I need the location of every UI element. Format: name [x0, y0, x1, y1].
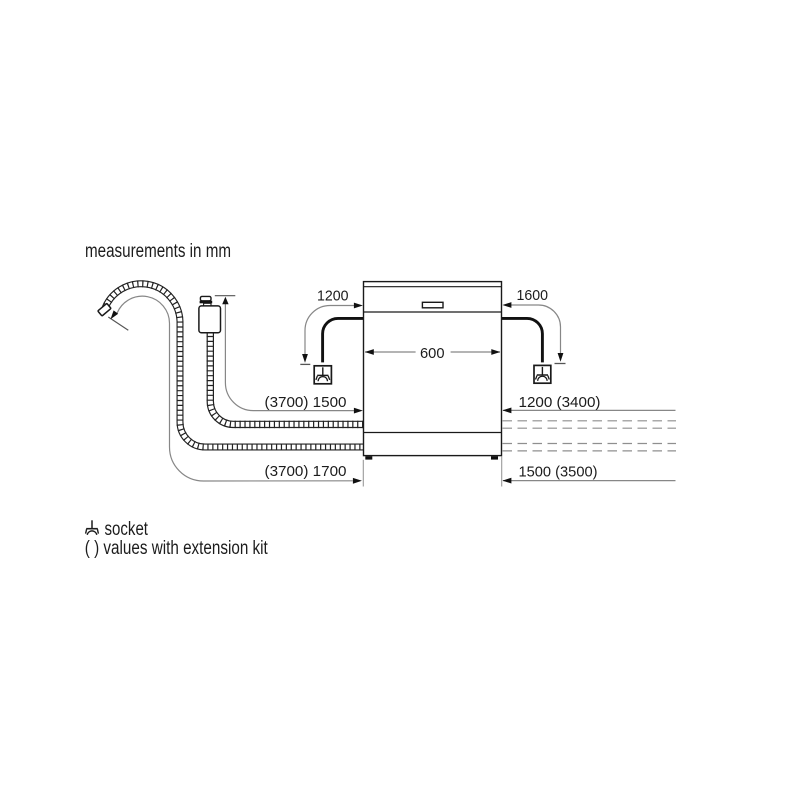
svg-text:1500 (3500): 1500 (3500) [519, 463, 598, 480]
svg-text:(3700) 1500: (3700) 1500 [265, 394, 347, 411]
svg-text:1600: 1600 [517, 287, 549, 304]
svg-text:( ) values with extension kit: ( ) values with extension kit [85, 538, 269, 559]
svg-text:measurements in mm: measurements in mm [85, 241, 231, 262]
svg-text:1200 (3400): 1200 (3400) [519, 394, 601, 411]
svg-text:600: 600 [420, 345, 445, 362]
svg-text:(3700) 1700: (3700) 1700 [265, 463, 347, 480]
svg-text:1200: 1200 [317, 287, 349, 304]
